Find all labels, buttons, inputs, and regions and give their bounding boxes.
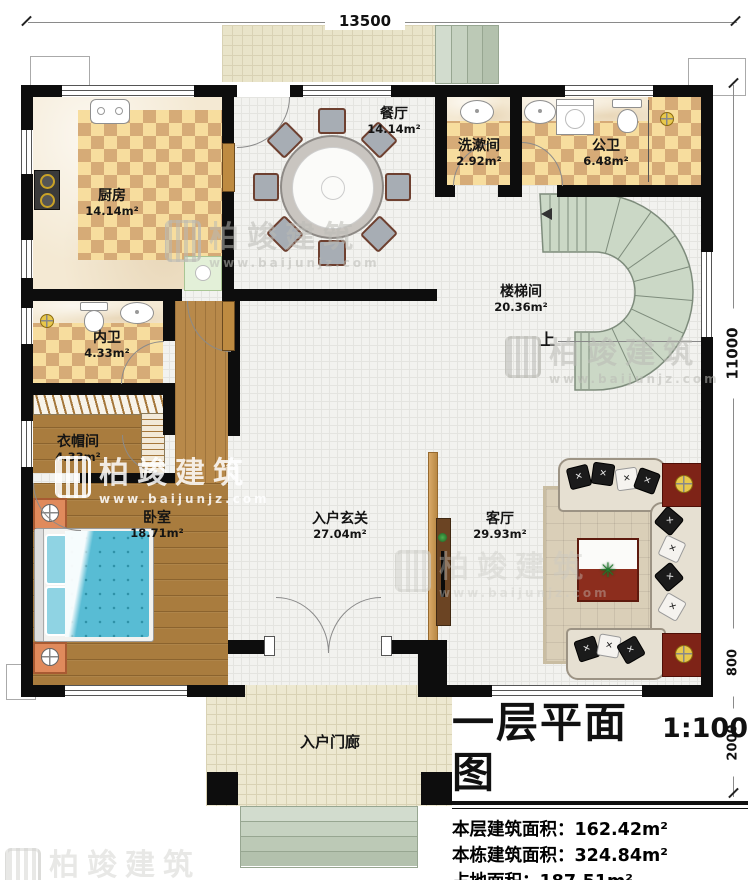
- wall: [701, 85, 713, 697]
- room-label-cloakroom: 衣帽间 4.33m²: [28, 434, 128, 465]
- plan-scale: 1:100: [662, 713, 748, 744]
- stat-floor-area: 本层建筑面积：162.42m²: [452, 817, 748, 843]
- dining-chair: [253, 173, 279, 201]
- wall: [557, 185, 701, 197]
- wall: [222, 190, 234, 301]
- dimension-tick: [730, 16, 741, 27]
- room-label-stairwell: 楼梯间 20.36m²: [471, 284, 571, 315]
- window: [701, 252, 713, 337]
- washing-machine: [556, 99, 594, 135]
- shower-icon: [660, 108, 674, 130]
- porch-steps: [240, 806, 418, 868]
- wall: [222, 97, 234, 143]
- wall: [234, 289, 437, 301]
- dining-chair: [385, 173, 411, 201]
- wardrobe: [33, 393, 165, 415]
- title-rule: [452, 801, 748, 805]
- plant-icon: [438, 533, 447, 542]
- wall: [435, 185, 455, 197]
- washbasin: [524, 100, 556, 124]
- wall: [80, 473, 175, 483]
- porch-pillar: [207, 772, 238, 805]
- toilet: [612, 99, 642, 133]
- floor-plan-canvas: ✕ ✕ ✕ ✕ ✕ ✕ ✕ ✕ ✕ ✕ ✕ ✳: [0, 0, 750, 880]
- dining-chair: [318, 240, 346, 266]
- watermark: 柏竣建筑 www.baijunjz.com: [5, 840, 220, 880]
- dimension-label-bay: 800: [726, 629, 741, 697]
- title-rule: [452, 808, 748, 809]
- side-table: [662, 463, 706, 507]
- room-label-washroom: 洗漱间 2.92m²: [437, 138, 521, 169]
- door-leaf: [222, 143, 235, 192]
- stat-footprint-area: 占地面积：187.51m²: [452, 869, 748, 880]
- window: [565, 85, 653, 97]
- room-label-kitchen: 厨房 14.14m²: [62, 188, 162, 219]
- wall: [21, 289, 182, 301]
- window: [21, 308, 33, 344]
- room-label-dining: 餐厅 14.14m²: [344, 106, 444, 137]
- dining-chair: [318, 108, 346, 134]
- room-label-bedroom: 卧室 18.71m²: [107, 510, 207, 541]
- stair-direction-line: [558, 341, 708, 342]
- window: [62, 85, 194, 97]
- stat-building-area: 本栋建筑面积：324.84m²: [452, 843, 748, 869]
- tv: [441, 551, 445, 597]
- terrace-steps: [435, 25, 499, 84]
- wall: [228, 640, 266, 654]
- plan-title: 一层平面图: [452, 698, 652, 799]
- window: [21, 130, 33, 174]
- side-table: [662, 633, 706, 677]
- wall: [418, 640, 447, 697]
- room-label-public-bath: 公卫 6.48m²: [564, 138, 648, 169]
- watermark-logo-icon: [5, 848, 41, 880]
- plant-icon: ✳: [600, 558, 617, 582]
- wall: [498, 185, 522, 197]
- entry-door-post: [381, 636, 392, 656]
- dimension-label-top: 13500: [325, 13, 405, 30]
- bed: [34, 528, 154, 642]
- window: [303, 85, 391, 97]
- kitchen-sink: [90, 99, 130, 124]
- wall: [163, 395, 175, 435]
- sofa-pillow: ✕: [591, 462, 616, 487]
- mattress: [65, 531, 149, 637]
- washbasin: [120, 302, 154, 324]
- window: [65, 685, 187, 697]
- shower-icon: [40, 310, 54, 332]
- nightstand: [33, 642, 67, 674]
- title-block: 一层平面图 1:100 本层建筑面积：162.42m² 本栋建筑面积：324.8…: [452, 698, 748, 880]
- dimension-label-right: 11000: [725, 309, 742, 399]
- wall: [163, 301, 175, 341]
- kitchen-tiles: [78, 110, 222, 260]
- washbasin: [460, 100, 494, 124]
- lamp-icon: [675, 645, 693, 663]
- kitchen-cabinet: [184, 256, 222, 291]
- stairs-up-label: 上: [535, 330, 559, 349]
- room-label-living: 客厅 29.93m²: [450, 511, 550, 542]
- door-opening: [237, 85, 290, 97]
- stove: [34, 170, 60, 210]
- toilet: [84, 310, 104, 332]
- lamp-icon: [41, 648, 59, 666]
- entry-door-post: [264, 636, 275, 656]
- shower-divider: [648, 100, 649, 182]
- porch-pillar: [421, 772, 452, 805]
- dining-table: [280, 135, 384, 239]
- tv-cabinet: [436, 518, 451, 626]
- terrace: [222, 25, 435, 82]
- dimension-tick: [21, 16, 32, 27]
- wall: [21, 383, 175, 395]
- window: [492, 685, 642, 697]
- window: [21, 240, 33, 278]
- door-leaf: [222, 301, 235, 351]
- room-label-porch: 入户门廊: [268, 733, 392, 751]
- room-label-foyer: 入户玄关 27.04m²: [285, 511, 395, 542]
- headboard: [35, 529, 44, 641]
- lamp-icon: [675, 475, 693, 493]
- room-label-private-bath: 内卫 4.33m²: [57, 330, 157, 361]
- coffee-table: ✳: [577, 538, 639, 602]
